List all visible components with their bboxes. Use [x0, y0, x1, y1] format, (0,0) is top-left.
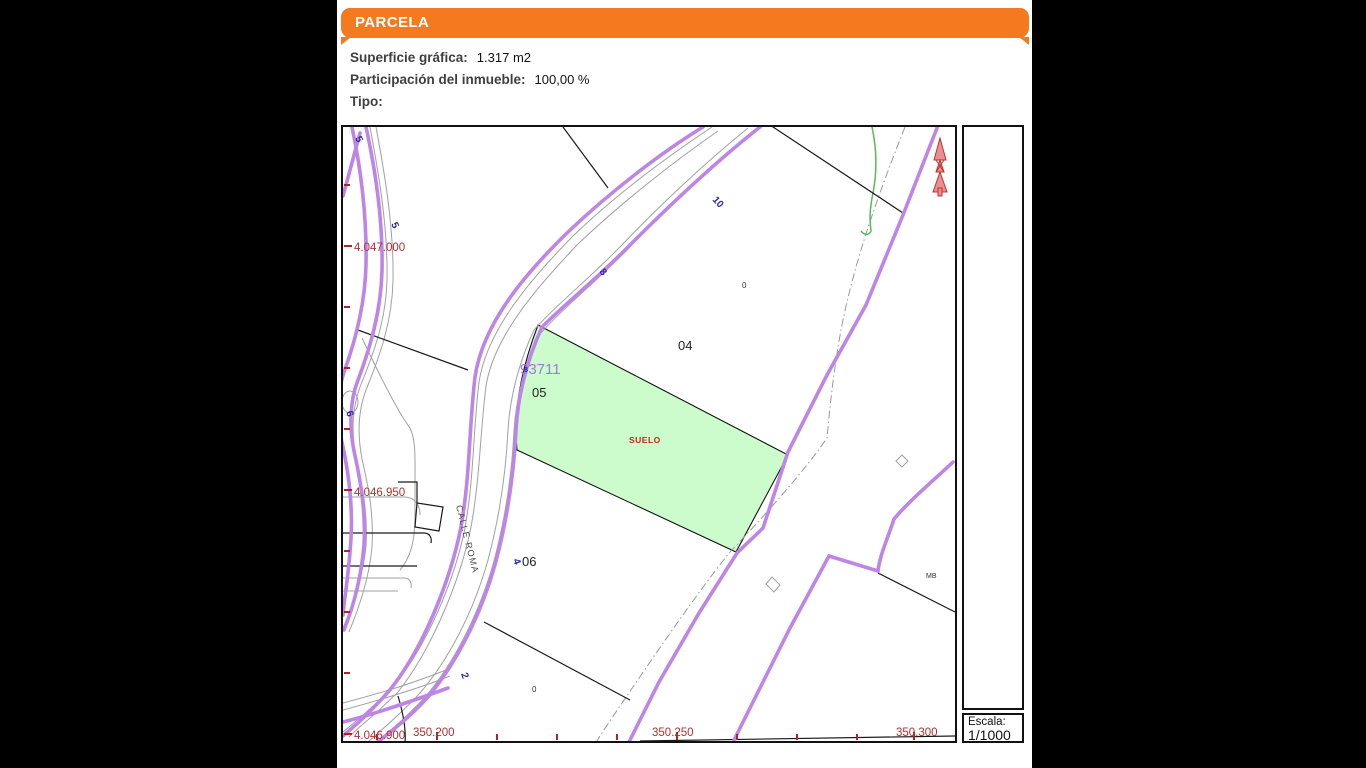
info-row-participacion: Participación del inmueble:100,00 %	[350, 69, 589, 91]
participacion-value: 100,00 %	[535, 72, 590, 87]
zero-label-bottom: 0	[532, 685, 537, 694]
mb-label: MB	[926, 573, 937, 580]
coord-label-y3: 4.046.900	[354, 730, 405, 741]
scale-value: 1/1000	[968, 728, 1022, 742]
tipo-label: Tipo:	[350, 94, 383, 109]
parcel-label-06: 06	[522, 554, 536, 569]
legend-rotated-content: Límite de manzana Límite de parcela Hidr…	[962, 129, 966, 707]
cadastral-map: 4.047.000 4.046.950 4.046.900 350.200 35…	[343, 127, 955, 741]
certification-disclaimer: Este documento electrónico contiene anex…	[962, 194, 963, 701]
street-number: 8	[524, 367, 528, 374]
superficie-label: Superficie gráfica:	[350, 50, 468, 65]
superficie-value: 1.317 m2	[477, 50, 531, 65]
legend-sidebar: Límite de manzana Límite de parcela Hidr…	[962, 125, 1024, 710]
participacion-label: Participación del inmueble:	[350, 72, 526, 87]
header-ribbon-tail-left	[341, 37, 351, 45]
header-ribbon-tail-right	[1019, 37, 1029, 45]
suelo-label: SUELO	[629, 435, 661, 445]
parcel-label-04: 04	[678, 338, 692, 353]
document-panel: PARCELA Superficie gráfica:1.317 m2 Part…	[337, 0, 1032, 768]
info-row-tipo: Tipo:	[350, 91, 589, 113]
info-row-superficie: Superficie gráfica:1.317 m2	[350, 47, 589, 69]
parcel-info-block: Superficie gráfica:1.317 m2 Participació…	[350, 47, 589, 113]
coord-label-y1: 4.047.000	[354, 242, 405, 254]
legend-row-3: Este documento electrónico contiene anex…	[962, 129, 967, 707]
coord-label-x1: 350.200	[413, 727, 455, 739]
page-background: PARCELA Superficie gráfica:1.317 m2 Part…	[0, 0, 1366, 768]
parcel-label-05: 05	[532, 385, 546, 400]
parcela-header-bar: PARCELA	[341, 8, 1029, 38]
page-title: PARCELA	[355, 14, 429, 31]
scale-box: Escala: 1/1000	[962, 713, 1024, 743]
cadastral-map-frame: 4.047.000 4.046.950 4.046.900 350.200 35…	[341, 125, 957, 743]
zero-label-top: 0	[742, 281, 747, 290]
coord-label-y2: 4.046.950	[354, 487, 405, 499]
coord-label-x2: 350.250	[652, 727, 694, 739]
coord-label-x3: 350.300	[896, 727, 938, 739]
